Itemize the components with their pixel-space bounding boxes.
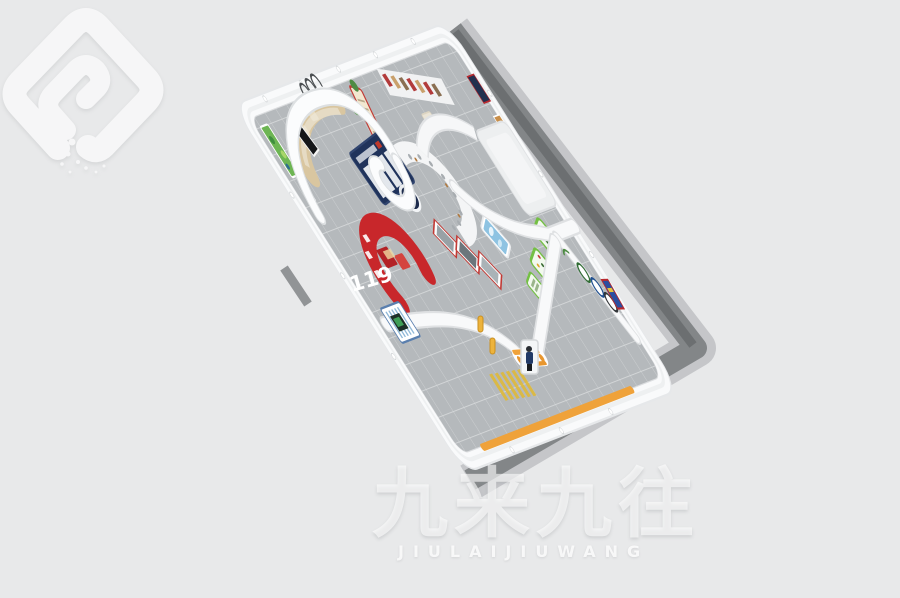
render-canvas: 119 九来九往 JIULAIJIUWANG xyxy=(0,0,900,598)
exhibition-hall-render: 119 xyxy=(0,0,900,598)
figure-cutout-display xyxy=(521,340,538,374)
